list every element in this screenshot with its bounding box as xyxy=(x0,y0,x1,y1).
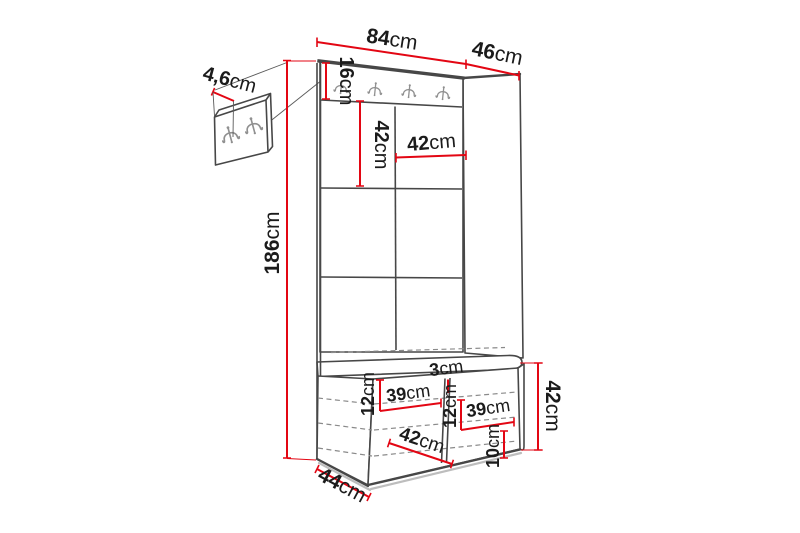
leader-line xyxy=(268,80,322,123)
main-unit xyxy=(319,61,523,358)
dim-label-total-height: 186cm xyxy=(261,211,284,274)
dim-label-detail-thickness: 4,6cm xyxy=(200,63,258,98)
dim-label-tile-height: 42cm xyxy=(370,121,392,170)
dim-label-bottom-gap: 10cm xyxy=(483,424,503,468)
dim-label-hook-panel-height: 16cm xyxy=(335,57,357,106)
panel-seam-vertical xyxy=(395,107,396,351)
dim-label-top-depth: 46cm xyxy=(470,37,525,70)
dim-label-bench-height: 42cm xyxy=(541,380,564,431)
dim-extension xyxy=(287,61,316,460)
diagram-canvas: 84cm 46cm 16cm 42cm 42cm 186cm 4,6cm 12c… xyxy=(0,0,800,533)
detail-panel-body xyxy=(215,94,273,166)
dim-line-detail-thickness xyxy=(213,92,234,101)
unit-side-face xyxy=(463,74,523,358)
dim-label-tile-width: 42cm xyxy=(406,130,457,156)
dim-label-bench-gap-right: 12cm xyxy=(440,384,460,428)
dim-label-bench-gap-left: 12cm xyxy=(358,372,378,416)
panel-seam-horizontal xyxy=(321,277,462,278)
furniture-dimension-diagram: 84cm 46cm 16cm 42cm 42cm 186cm 4,6cm 12c… xyxy=(0,0,800,533)
detail-panel xyxy=(215,94,273,166)
panel-seam-horizontal xyxy=(321,188,462,189)
